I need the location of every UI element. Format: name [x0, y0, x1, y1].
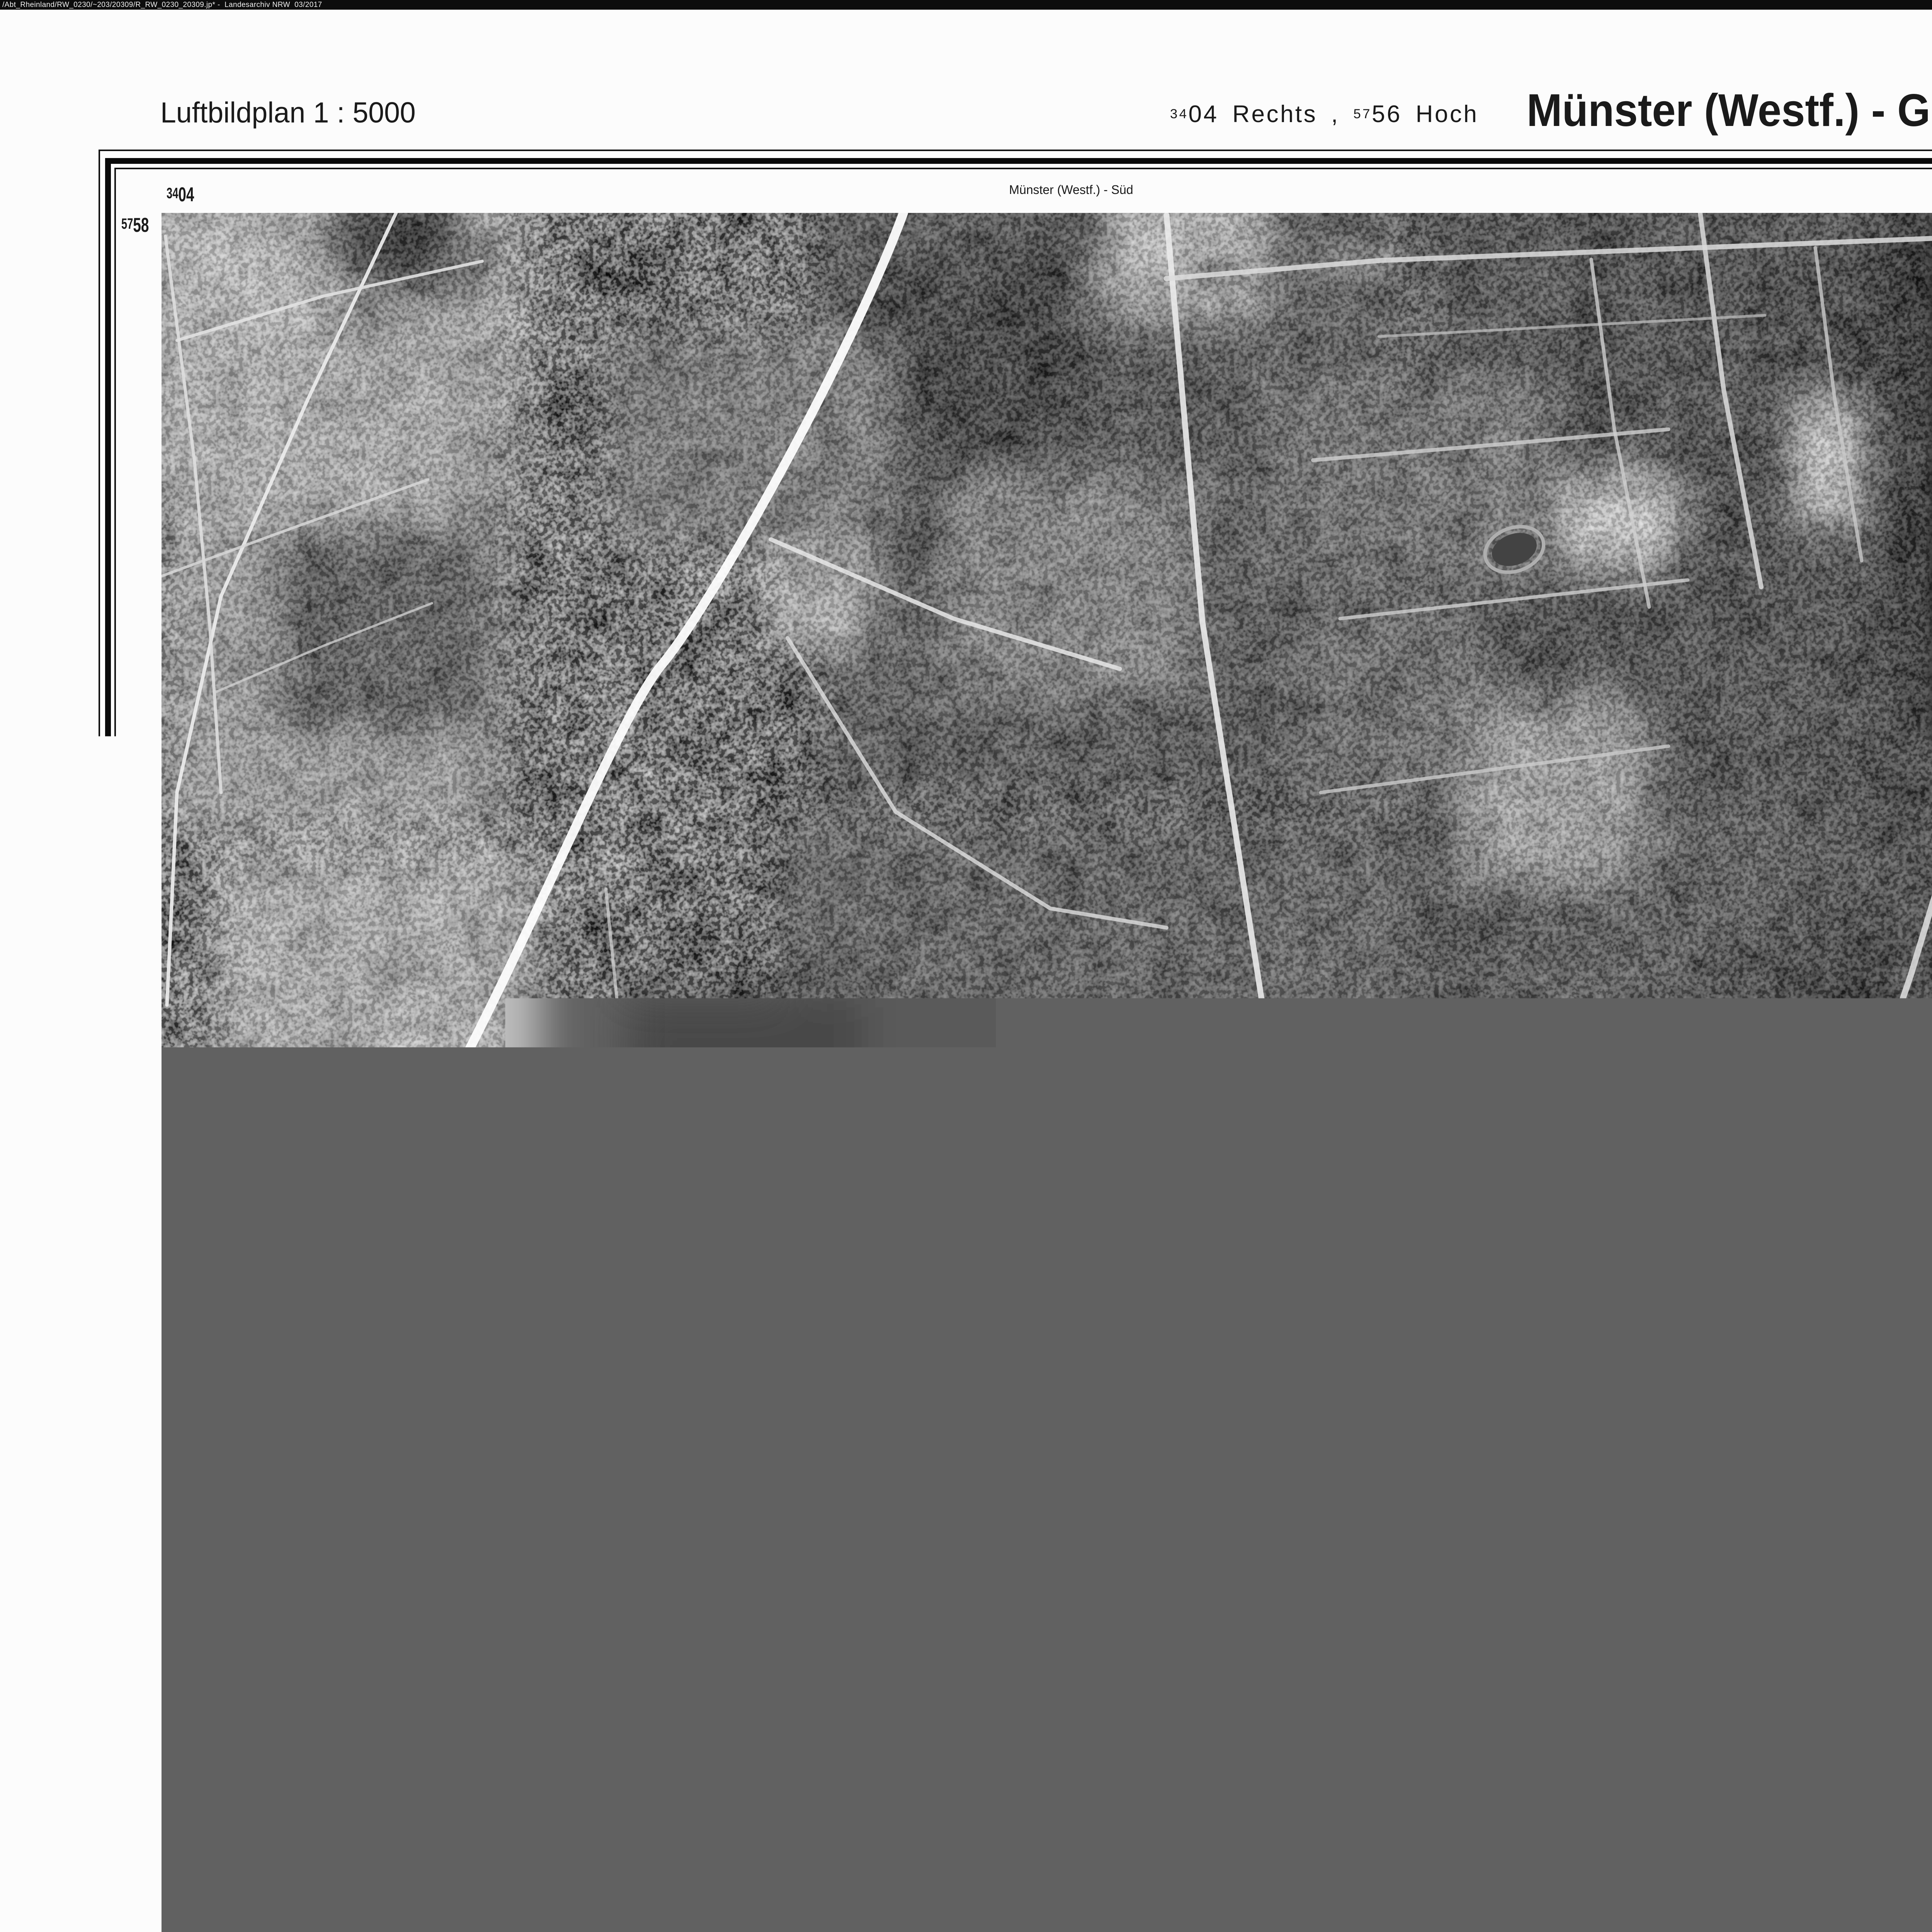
- svg-text:T: T: [1436, 1208, 1468, 1261]
- svg-text:S: S: [1250, 1204, 1282, 1257]
- svg-text:E: E: [886, 1208, 918, 1260]
- svg-text:I: I: [1075, 1206, 1088, 1259]
- svg-text:G: G: [706, 1206, 742, 1258]
